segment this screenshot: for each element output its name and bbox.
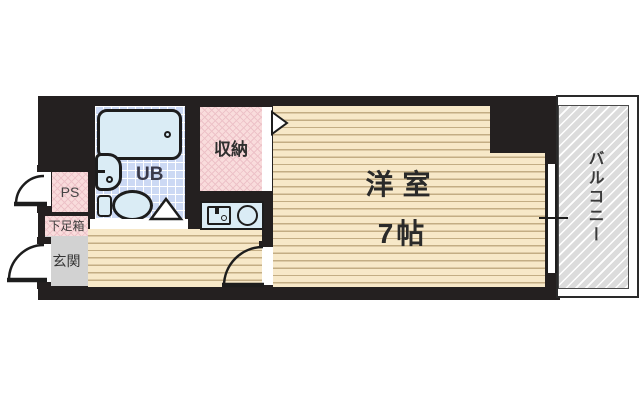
closet-label: 収納 xyxy=(214,141,248,158)
closet-area: 収納 xyxy=(200,107,262,191)
balcony-label: バルコニー xyxy=(586,150,602,245)
unit-bath-label: UB xyxy=(136,165,163,184)
kitchen-sink xyxy=(207,206,231,225)
floor-plan: バルコニー UB 収納 PS 下足箱 xyxy=(0,0,640,400)
room-door-opening xyxy=(262,246,273,287)
washbasin-drain-icon xyxy=(106,176,113,183)
unit-bath-area: UB xyxy=(95,106,185,219)
main-room-name: 洋室 xyxy=(330,163,475,203)
closet-door xyxy=(262,107,272,191)
ps-door-opening xyxy=(38,170,51,208)
pipe-space-area: PS xyxy=(52,172,88,212)
bathtub-drain-icon xyxy=(164,131,171,138)
shoe-box-area: 下足箱 xyxy=(45,216,88,236)
kitchen-unit xyxy=(200,201,264,230)
main-room-label: 洋室 7帖 xyxy=(330,163,475,252)
sink-faucet-icon xyxy=(215,207,219,214)
balcony-window xyxy=(546,164,557,273)
shoe-box-label: 下足箱 xyxy=(48,220,84,232)
stove-burner xyxy=(237,205,258,226)
hallway-floor xyxy=(88,229,262,287)
washbasin xyxy=(95,153,122,191)
washbasin-faucet-icon xyxy=(95,170,105,173)
pipe-space-label: PS xyxy=(61,185,80,199)
sink-drain-icon xyxy=(221,215,227,221)
entrance-area: 玄関 xyxy=(45,236,88,286)
main-room-size: 7帖 xyxy=(330,212,475,252)
entrance-label: 玄関 xyxy=(53,254,81,268)
toilet-bowl xyxy=(112,190,153,221)
entrance-door-opening xyxy=(38,242,51,284)
balcony-area: バルコニー xyxy=(558,105,629,289)
wall-notch xyxy=(490,106,545,153)
bath-threshold xyxy=(90,219,188,229)
toilet-tank xyxy=(97,195,112,217)
